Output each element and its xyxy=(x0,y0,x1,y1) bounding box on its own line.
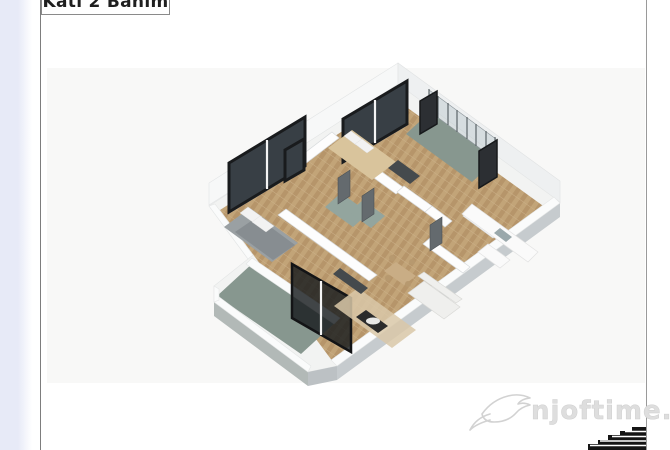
floor-plan-graphic: njoftime.al xyxy=(0,0,670,450)
watermark-text: njoftime.al xyxy=(531,396,670,426)
swallow-bird-icon xyxy=(470,395,530,430)
watermark: njoftime.al xyxy=(470,395,670,430)
stairs-graphic xyxy=(588,427,646,450)
